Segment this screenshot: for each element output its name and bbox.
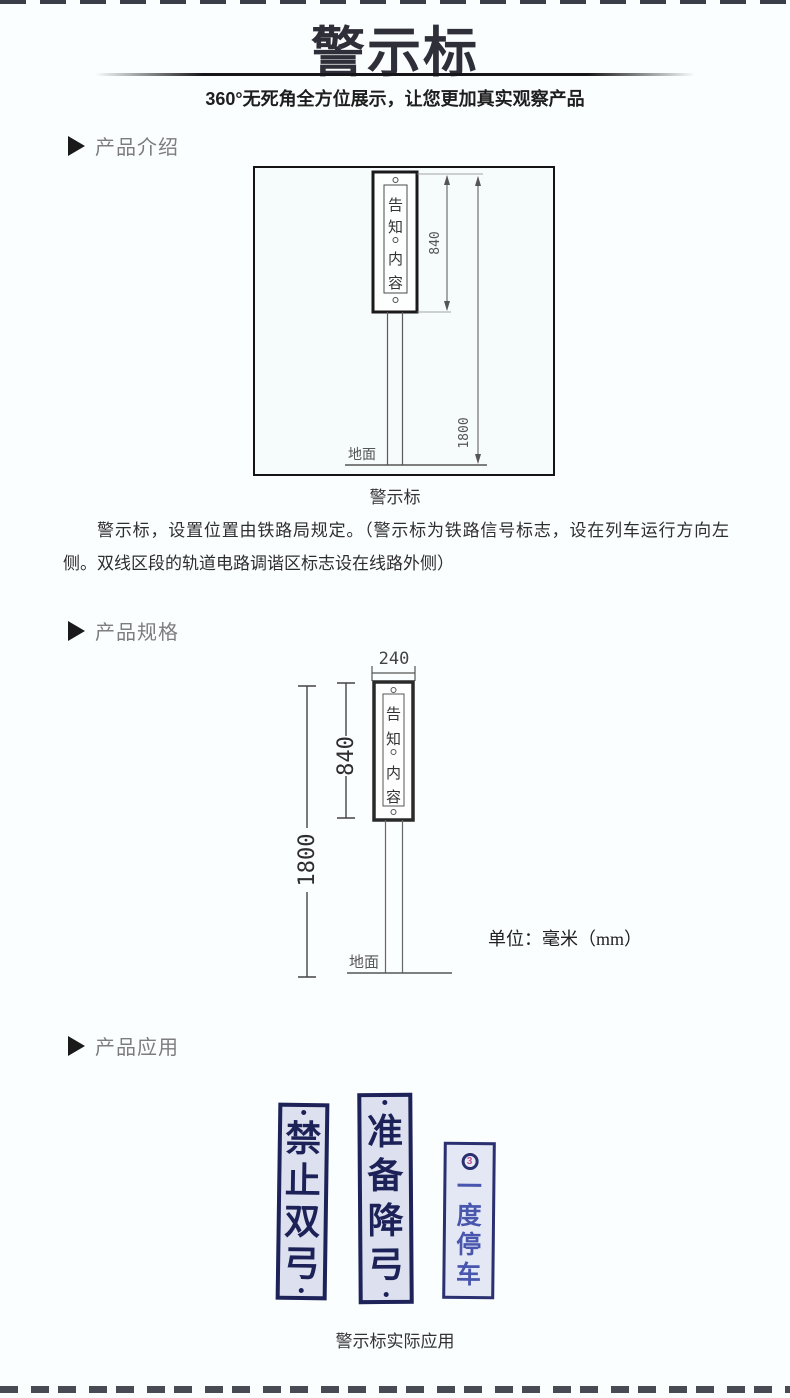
intro-caption: 警示标: [0, 483, 790, 508]
sign-char: 准: [367, 1113, 403, 1149]
title-divider: [95, 73, 695, 76]
section-heading-intro: 产品介绍: [68, 131, 179, 160]
product-page: 警示标 360°无死角全方位展示，让您更加真实观察产品 产品介绍 告 知 内 容…: [0, 0, 790, 1398]
app-sign-jinzhishuanggong: 禁 止 双 弓: [276, 1103, 330, 1301]
arrow-down-icon: [444, 301, 450, 311]
screw-dot-icon: [299, 1288, 304, 1293]
arrow-down-icon: [475, 454, 481, 464]
sign-char: 停: [456, 1233, 481, 1258]
section-label: 产品应用: [95, 1031, 179, 1060]
sign-char: 告: [388, 197, 403, 214]
intro-diagram: 告 知 内 容 地面 840 1800: [253, 166, 555, 476]
app-sign-zhunbeijianggong: 准 备 降 弓: [357, 1093, 413, 1304]
sign-char: 车: [456, 1263, 481, 1288]
intro-paragraph: 警示标，设置位置由铁路局规定。（警示标为铁路信号标志，设在列车运行方向左侧。双线…: [63, 514, 729, 580]
sign-char: 知: [386, 731, 401, 748]
sign-char: 告: [386, 706, 401, 723]
app-sign-yidutingche: 3 一 度 停 车: [442, 1142, 496, 1300]
sign-char: 容: [388, 275, 403, 292]
section-heading-app: 产品应用: [68, 1031, 179, 1060]
app-caption: 警示标实际应用: [0, 1327, 790, 1352]
top-edge-strip: [0, 0, 790, 4]
sign-char: 知: [388, 219, 403, 236]
sign-char: 内: [388, 251, 403, 268]
circled-3-badge: 3: [461, 1153, 478, 1170]
section-label: 产品介绍: [95, 131, 179, 160]
sign-char: 止: [285, 1162, 322, 1198]
ground-label: 地面: [348, 447, 376, 463]
triangle-right-icon: [68, 136, 85, 156]
screw-dot-icon: [301, 1110, 306, 1115]
triangle-right-icon: [68, 621, 85, 641]
page-subtitle: 360°无死角全方位展示，让您更加真实观察产品: [0, 85, 790, 111]
dim-label-1800: 1800: [295, 834, 320, 887]
sign-char: 禁: [285, 1121, 322, 1157]
dim-label-1800: 1800: [457, 417, 472, 448]
arrow-up-icon: [444, 175, 450, 185]
sign-char: 双: [284, 1204, 321, 1240]
spec-diagram: 240 告 知 内 容 地面 840: [230, 640, 670, 1000]
ground-label: 地面: [349, 954, 379, 971]
screw-dot-icon: [382, 1100, 387, 1105]
section-label: 产品规格: [95, 616, 179, 645]
dim-label-240: 240: [379, 649, 410, 669]
triangle-right-icon: [68, 1036, 85, 1056]
dim-label-840: 840: [334, 736, 359, 776]
sign-char: 内: [386, 765, 401, 782]
sign-char: 度: [456, 1204, 481, 1229]
sign-char: 一: [457, 1175, 482, 1200]
arrow-up-icon: [475, 176, 481, 186]
spec-diagram-drawing: 240 告 知 内 容 地面 840: [230, 640, 670, 1000]
bottom-edge-strip: [0, 1386, 790, 1393]
sign-char: 容: [386, 789, 401, 806]
unit-note: 单位：毫米（mm）: [488, 929, 642, 949]
dim-label-840: 840: [428, 231, 443, 254]
sign-char: 弓: [368, 1247, 404, 1283]
section-heading-spec: 产品规格: [68, 616, 179, 645]
intro-diagram-drawing: 告 知 内 容 地面 840 1800: [255, 168, 553, 474]
sign-char: 备: [367, 1158, 403, 1194]
screw-dot-icon: [384, 1292, 389, 1297]
sign-char: 降: [368, 1203, 404, 1239]
sign-char: 弓: [283, 1246, 320, 1282]
